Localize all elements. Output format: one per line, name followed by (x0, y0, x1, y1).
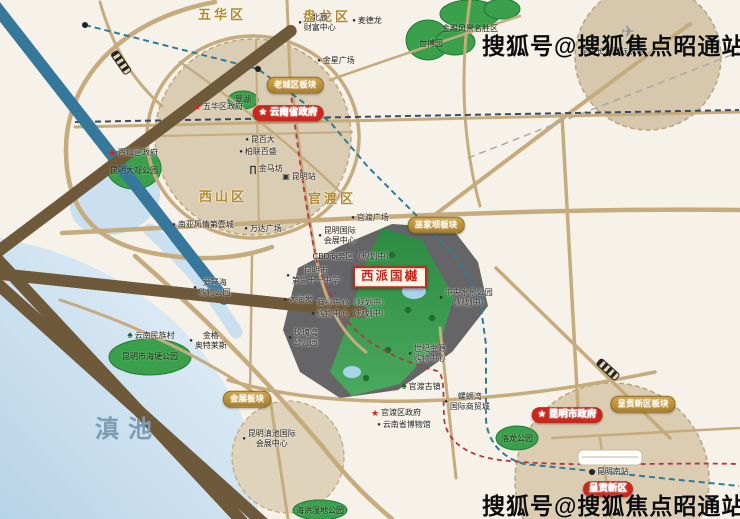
poi-kunming-south-station: ●昆明南站 (591, 467, 629, 477)
poi-intl-convention-center-label: 昆明国际 会展中心 (324, 226, 356, 246)
poi-shopping-center-planned-label: 购物中心（规划中） (317, 309, 389, 319)
poi-haihong-wetland-park: 海洪湿地公园 (296, 506, 344, 516)
poi-metro-market-label: 麦德龙 (358, 16, 382, 26)
poi-shopping-center-planned: ●购物中心（规划中） (311, 309, 389, 319)
badge-yunnan-provincial-govt-label: ★ 云南省政府 (259, 107, 318, 119)
dianchi-lake-label-label: 滇池 (95, 415, 161, 445)
poi-wanda-plaza-label: 万达广场 (250, 224, 282, 234)
poi-business-center-planned-label: 商业中心（规划中） (317, 298, 389, 308)
poi-beichen-wealth-center-label: 北辰 财富中心 (304, 13, 336, 33)
poi-yunnan-ethnic-village: ♠云南民族村 (127, 331, 174, 341)
poi-beichen-wealth-center: ●北辰 财富中心 (298, 13, 336, 33)
poi-expo-garden-label: 世博园 (419, 39, 443, 49)
poi-daguan-park: 昆明大观公园 (110, 166, 158, 176)
badge-chenggong-plate-label: 呈贡新区板块 (617, 399, 668, 410)
poi-guandu-ancient-town: ♠官渡古镇 (401, 382, 440, 392)
poi-daguan-park-label: 昆明大观公园 (110, 166, 158, 176)
poi-guandu-district-govt: ★官渡区政府 (371, 408, 421, 418)
dot-icon: ● (193, 285, 197, 291)
poi-meiguiwan-kindergarten: ●玫瑰湾 幼儿园 (288, 328, 318, 348)
dot-icon: ● (408, 351, 412, 357)
poi-guandu-square-label: 官渡广场 (357, 213, 389, 223)
poi-intl-convention-center: ●昆明国际 会展中心 (318, 226, 356, 246)
dot-icon: ● (244, 226, 248, 232)
tree-icon: ♠ (401, 382, 406, 392)
poi-business-center-planned: 商业中心（规划中） (317, 298, 389, 308)
dianchi-lake-label: 滇池 (95, 415, 161, 445)
dot-icon: ● (172, 222, 176, 228)
poi-haigeng-park: 昆明市海埂公园 (122, 352, 178, 362)
poi-jinxing-square-label: 金星广场 (323, 56, 355, 66)
star-icon: ★ (193, 103, 201, 112)
poi-rt-mart-label: 大润发 (289, 295, 313, 305)
dot-icon: ● (242, 436, 246, 442)
badge-old-town-plate: 老城区板块 (267, 77, 324, 94)
poi-yunnan-museum: ●云南省博物馆 (377, 420, 431, 430)
poi-cuihu-label: 翠湖 (235, 95, 251, 105)
badge-exhibition-plate: 会展板块 (223, 391, 271, 408)
poi-dianchi-intl-convention-label: 昆明滇池国际 会展中心 (248, 429, 296, 449)
poi-central-water-park-planned: ●中央水景公园 （规划中） (439, 288, 493, 308)
poi-haihong-wetland-park-label: 海洪湿地公园 (296, 506, 344, 516)
poi-aiqinhai-shopping-park-label: 爱琴海 购物公园 (199, 278, 231, 298)
dot-icon: ● (377, 422, 381, 428)
district-guandu: 官渡区 (308, 191, 356, 207)
badge-yunnan-provincial-govt: ★ 云南省政府 (253, 105, 324, 121)
poi-jinmafang: ∏金马坊 (249, 164, 282, 174)
dot-icon: ● (591, 469, 595, 475)
district-xishan-label: 西山区 (199, 189, 247, 205)
poi-jinmafang-label: 金马坊 (259, 164, 283, 174)
badge-old-town-plate-label: 老城区板块 (274, 80, 317, 91)
star-icon: ★ (108, 149, 116, 158)
poi-century-jinyuan-mall-label: 世纪金源 购物中心 (414, 344, 446, 364)
poi-nanya-fengqing-label: 南亚风情第壹城 (178, 220, 234, 230)
poi-nanya-fengqing: ●南亚风情第壹城 (172, 220, 234, 230)
dot-icon: ● (298, 20, 302, 26)
train-icon: ▣ (282, 173, 290, 181)
badge-chenggong-plate: 呈贡新区板块 (610, 396, 675, 413)
badge-exhibition-plate-label: 会展板块 (230, 394, 264, 405)
poi-guandu-square: ●官渡广场 (351, 213, 389, 223)
poi-aiqinhai-shopping-park: ●爱琴海 购物公园 (193, 278, 231, 298)
poi-yunnan-ethnic-village-label: 云南民族村 (135, 331, 175, 341)
district-wuhua: 五华区 (198, 7, 246, 23)
poi-luolong-park-label: 洛龙公园 (501, 434, 533, 444)
dot-icon: ● (444, 399, 448, 405)
district-xishan: 西山区 (199, 189, 247, 205)
star-icon: ★ (371, 409, 379, 418)
poi-bolian-parkson-label: 柏联百盛 (245, 147, 277, 157)
exhibition-circle (232, 401, 344, 513)
poi-central-water-park-planned-label: 中央水景公园 （规划中） (445, 288, 493, 308)
poi-rt-mart: ●大润发 (283, 295, 313, 305)
poi-dianchi-intl-convention: ●昆明滇池国际 会展中心 (242, 429, 296, 449)
dot-icon: ● (286, 273, 290, 279)
dot-icon: ● (239, 149, 243, 155)
poi-haigeng-park-label: 昆明市海埂公园 (122, 352, 178, 362)
poi-yunnan-museum-label: 云南省博物馆 (383, 420, 431, 430)
poi-xishan-district-govt: ★西山区政府 (108, 148, 158, 158)
poi-expo-garden: 世博园 (419, 39, 443, 49)
poi-no31-middle-school-label: 昆明市 第三十一中学 (292, 266, 340, 286)
poi-bolian-parkson: ●柏联百盛 (239, 147, 277, 157)
poi-jinge-outlets-label: 金格 奥特莱斯 (195, 331, 227, 351)
poi-luosiwan-trade-city-label: 螺蛳湾 国际商贸城 (450, 392, 490, 412)
dot-icon: ● (288, 335, 292, 341)
badge-wujiaba-plate-label: 巫家坝板块 (415, 220, 458, 231)
poi-kunming-south-station-label: 昆明南站 (597, 467, 629, 477)
dot-icon: ● (352, 18, 356, 24)
poi-cbd-planned: CBD商务区（规划中） (313, 252, 394, 262)
poi-xishan-district-govt-label: 西山区政府 (118, 148, 158, 158)
poi-kunming-station: ▣昆明站 (282, 172, 316, 182)
badge-project-xipai-guoyue: 西派国樾 (353, 266, 427, 288)
poi-century-jinyuan-mall: ●世纪金源 购物中心 (408, 344, 446, 364)
dot-icon: ● (311, 311, 315, 317)
poi-guandu-district-govt-label: 官渡区政府 (381, 408, 421, 418)
dot-icon: ● (245, 137, 249, 143)
poi-jinge-outlets: ●金格 奥特莱斯 (189, 331, 227, 351)
poi-metro-market: ●麦德龙 (352, 16, 382, 26)
dot-icon: ● (439, 295, 443, 301)
dot-icon: ● (317, 58, 321, 64)
poi-no31-middle-school: ●昆明市 第三十一中学 (286, 266, 340, 286)
dot-icon: ● (189, 338, 193, 344)
tree-icon: ♠ (127, 331, 132, 341)
poi-luosiwan-trade-city: ●螺蛳湾 国际商贸城 (444, 392, 490, 412)
south-station-building (578, 450, 642, 465)
dot-icon: ● (318, 233, 322, 239)
poi-kunming-station-label: 昆明站 (292, 172, 316, 182)
badge-project-xipai-guoyue-label: 西派国樾 (361, 269, 419, 285)
badge-kunming-city-govt-label: ★ 昆明市政府 (538, 409, 597, 421)
sohu-watermark-bottom: 搜狐号@搜狐焦点昭通站 (482, 487, 740, 519)
poi-kunbaida-label: 昆百大 (251, 135, 275, 145)
sohu-watermark-top: 搜狐号@搜狐焦点昭通站 (482, 27, 740, 61)
district-guandu-label: 官渡区 (308, 191, 356, 207)
poi-meiguiwan-kindergarten-label: 玫瑰湾 幼儿园 (294, 328, 318, 348)
dot-icon: ● (351, 215, 355, 221)
poi-wanda-plaza: ●万达广场 (244, 224, 282, 234)
dot-icon: ● (283, 297, 287, 303)
poi-luolong-park: 洛龙公园 (501, 434, 533, 444)
poi-jinxing-square: ●金星广场 (317, 56, 355, 66)
poi-cuihu: 翠湖 (235, 95, 251, 105)
poi-guandu-ancient-town-label: 官渡古镇 (409, 382, 441, 392)
district-wuhua-label: 五华区 (198, 7, 246, 23)
map-canvas: 五华区盘龙区西山区官渡区滇池★ 云南省政府★ 昆明市政府呈贡新区老城区板块巫家坝… (0, 0, 740, 519)
badge-kunming-city-govt: ★ 昆明市政府 (532, 407, 603, 423)
gate-icon: ∏ (249, 165, 256, 174)
badge-wujiaba-plate: 巫家坝板块 (408, 217, 465, 234)
poi-cbd-planned-label: CBD商务区（规划中） (313, 252, 394, 262)
poi-kunbaida: ●昆百大 (245, 135, 275, 145)
